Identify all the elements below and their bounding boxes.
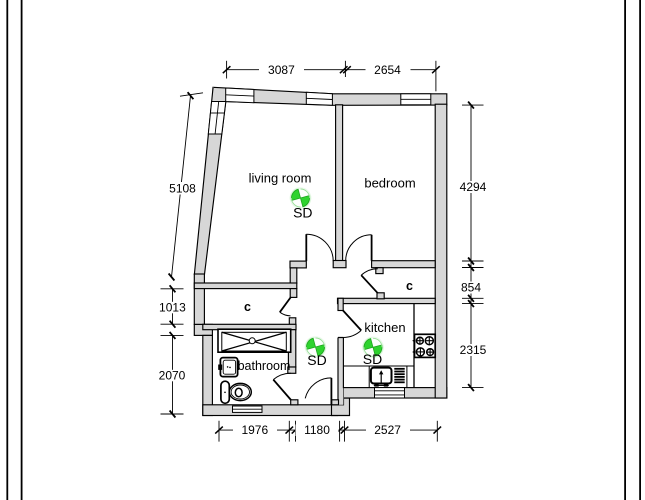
svg-text:bathroom: bathroom [238,359,291,373]
svg-text:SD: SD [293,204,312,220]
svg-text:2070: 2070 [159,368,186,382]
svg-text:1180: 1180 [304,423,330,437]
svg-text:kitchen: kitchen [364,320,405,335]
svg-text:1976: 1976 [241,423,268,437]
svg-text:SD: SD [307,352,326,368]
svg-text:c: c [244,300,251,314]
svg-text:4294: 4294 [460,180,487,194]
svg-text:bedroom: bedroom [364,175,415,190]
svg-text:5108: 5108 [169,181,196,195]
svg-text:1013: 1013 [159,300,186,314]
svg-text:2527: 2527 [374,423,401,437]
svg-text:c: c [406,279,413,293]
svg-text:854: 854 [461,281,481,295]
svg-text:living room: living room [249,170,312,185]
svg-text:2654: 2654 [374,63,401,77]
svg-text:3087: 3087 [268,63,295,77]
svg-text:2315: 2315 [460,343,487,357]
svg-text:SD: SD [363,351,382,367]
